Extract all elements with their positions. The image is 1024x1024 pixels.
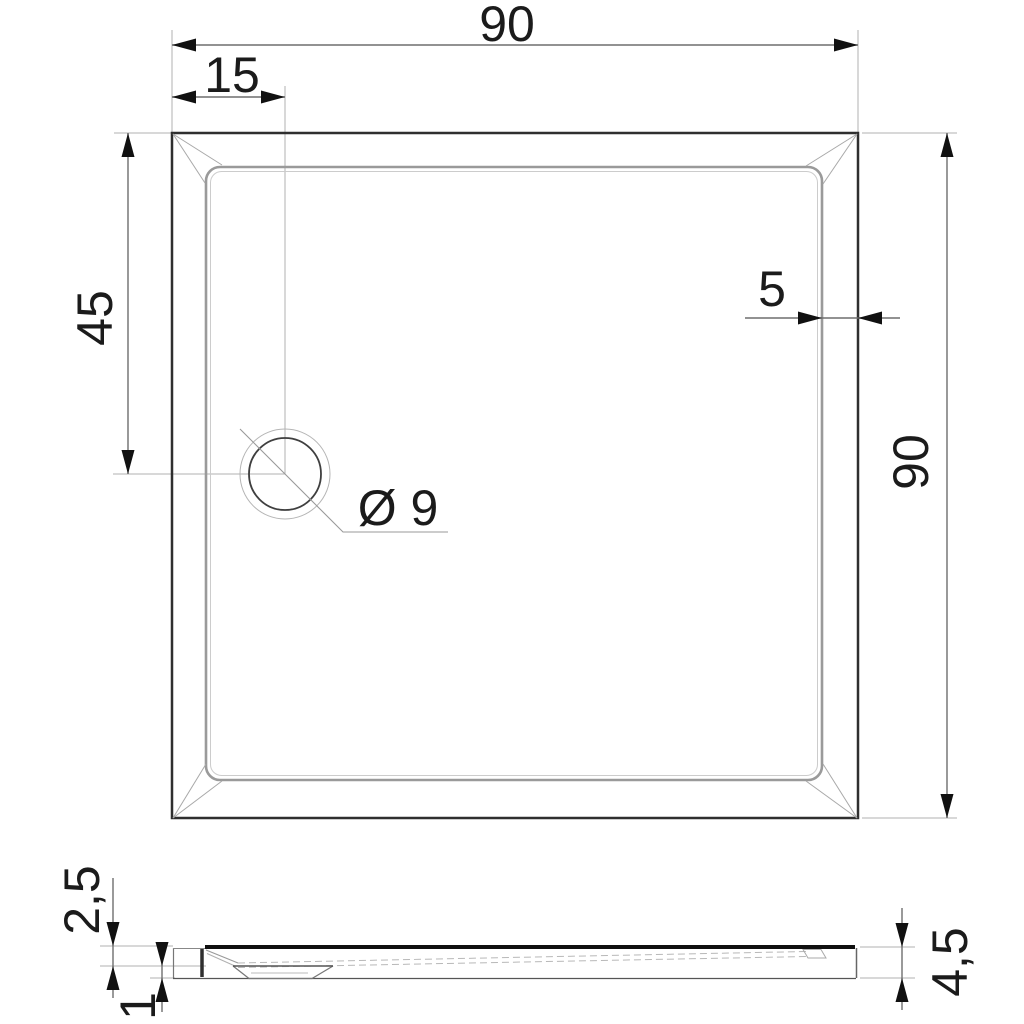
chamfer-line — [173, 134, 222, 165]
dim-label-edge-height: 2,5 — [54, 865, 110, 935]
shower-tray-technical-drawing: 90 15 45 5 90 — [0, 0, 1024, 1024]
extension-lines — [113, 30, 957, 818]
arrowhead-bottom — [941, 794, 954, 818]
dim-label-drain-diameter: Ø 9 — [358, 480, 439, 536]
tray-section-profile — [173, 947, 857, 979]
arrowhead-down — [896, 923, 909, 947]
arrowhead-top — [122, 133, 135, 157]
tray-basin-edge — [211, 172, 818, 776]
dim-label-overall-depth: 90 — [883, 434, 939, 490]
dim-edge-height: 2,5 — [54, 865, 120, 998]
basin-right-step — [803, 950, 826, 959]
tray-rim-inner-edge — [206, 167, 822, 780]
dim-overall-width: 90 — [172, 0, 858, 52]
dim-overall-depth: 90 — [883, 133, 954, 818]
dim-label-total-height: 4,5 — [922, 927, 978, 997]
arrowhead-up — [896, 978, 909, 1002]
chamfer-line — [173, 134, 205, 183]
basin-floor-line-upper — [238, 952, 806, 964]
dim-drain-offset-x: 15 — [172, 47, 285, 104]
arrowhead-right — [858, 312, 882, 325]
arrowhead-right — [834, 39, 858, 52]
plan-view: 90 15 45 5 90 — [67, 0, 957, 818]
drawing-canvas: 90 15 45 5 90 — [0, 0, 1024, 1024]
chamfer-line — [806, 781, 857, 818]
arrowhead-bottom — [122, 450, 135, 474]
dim-label-drain-offset-y: 45 — [67, 290, 123, 346]
corner-chamfer-lines — [173, 134, 857, 818]
dim-label-overall-width: 90 — [479, 0, 535, 52]
basin-left-slope — [206, 950, 238, 963]
dim-total-height: 4,5 — [896, 908, 979, 1010]
dim-drain-offset-y: 45 — [67, 133, 135, 474]
dim-label-rim-width: 5 — [758, 261, 786, 317]
chamfer-line — [823, 134, 857, 184]
arrowhead-left — [798, 312, 822, 325]
dim-bottom-height: 1 — [110, 942, 169, 1020]
chamfer-line — [806, 134, 857, 166]
arrowhead-right — [261, 91, 285, 104]
dim-label-drain-offset-x: 15 — [204, 47, 260, 103]
arrowhead-left — [172, 91, 196, 104]
arrowhead-left — [172, 39, 196, 52]
arrowhead-up — [107, 966, 120, 990]
chamfer-line — [823, 764, 857, 818]
chamfer-line — [173, 764, 206, 818]
arrowhead-down — [156, 942, 169, 966]
dim-label-bottom-height: 1 — [110, 992, 166, 1020]
tray-outer-edge — [172, 133, 858, 818]
chamfer-line — [173, 781, 222, 818]
drain-boss-outline — [233, 966, 333, 979]
section-view: 2,5 1 4,5 — [54, 865, 978, 1020]
dim-drain-diameter: Ø 9 — [358, 480, 439, 536]
arrowhead-top — [941, 133, 954, 157]
